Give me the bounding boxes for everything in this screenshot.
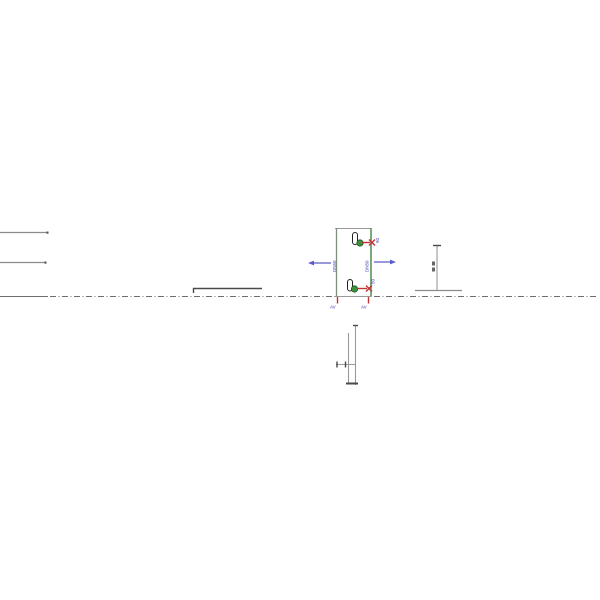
arrowhead-right-icon bbox=[390, 260, 396, 265]
valve-assembly-bottom[interactable]: 50 bbox=[348, 278, 376, 292]
stub-label-right: AV bbox=[361, 305, 367, 310]
lower-drop-detail[interactable] bbox=[336, 325, 358, 385]
right-riser-detail[interactable] bbox=[415, 246, 462, 291]
flow-direction-arrows bbox=[308, 260, 396, 266]
riser-annotation-mark bbox=[432, 262, 435, 266]
riser-annotation-mark bbox=[432, 268, 435, 272]
drawing-canvas[interactable]: DN50 DN50 AV AV 50 50 bbox=[0, 0, 600, 600]
valve-size-label-bottom: 50 bbox=[371, 278, 376, 284]
valve-ball-icon[interactable] bbox=[351, 286, 357, 292]
pipe-size-label-right: DN50 bbox=[365, 260, 370, 272]
left-pipe-lines[interactable] bbox=[0, 232, 49, 264]
mid-pipe-segment[interactable] bbox=[193, 288, 262, 293]
valve-assembly-top[interactable]: 50 bbox=[353, 233, 381, 247]
valve-size-label-top: 50 bbox=[375, 237, 380, 243]
stub-label-left: AV bbox=[330, 305, 336, 310]
pipe-size-label-left: DN50 bbox=[332, 260, 337, 272]
arrowhead-left-icon bbox=[308, 261, 314, 266]
equipment-box[interactable]: DN50 DN50 AV AV bbox=[330, 228, 372, 310]
line-end-cap bbox=[45, 262, 47, 264]
line-end-cap bbox=[47, 232, 49, 234]
